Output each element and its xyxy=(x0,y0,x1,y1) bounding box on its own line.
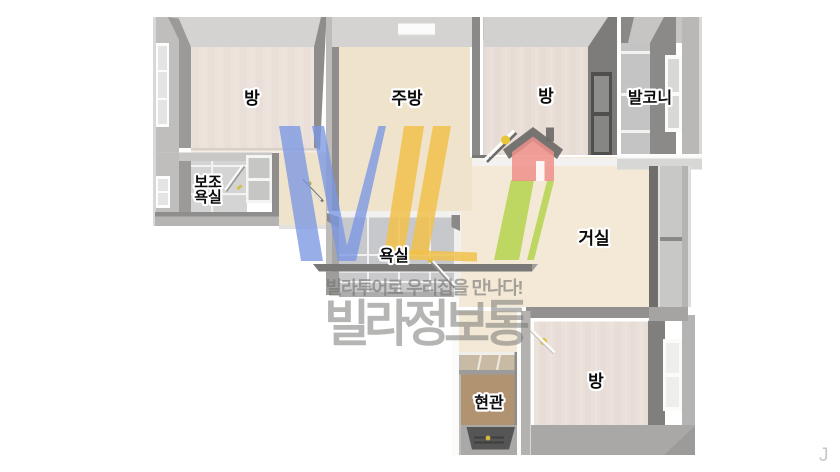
svg-text:빌라투어로 우리집을 만나다!: 빌라투어로 우리집을 만나다! xyxy=(326,278,523,298)
svg-text:현관: 현관 xyxy=(474,393,504,412)
svg-text:욕실: 욕실 xyxy=(379,247,408,265)
svg-text:방: 방 xyxy=(588,372,604,391)
svg-text:빌라정보통: 빌라정보통 xyxy=(324,296,529,352)
svg-text:발코니: 발코니 xyxy=(628,89,672,107)
svg-text:욕실: 욕실 xyxy=(194,189,222,206)
svg-text:방: 방 xyxy=(538,87,554,106)
svg-text:방: 방 xyxy=(244,89,260,108)
svg-text:거실: 거실 xyxy=(578,229,609,248)
svg-text:J: J xyxy=(819,445,829,466)
svg-text:주방: 주방 xyxy=(391,89,423,108)
